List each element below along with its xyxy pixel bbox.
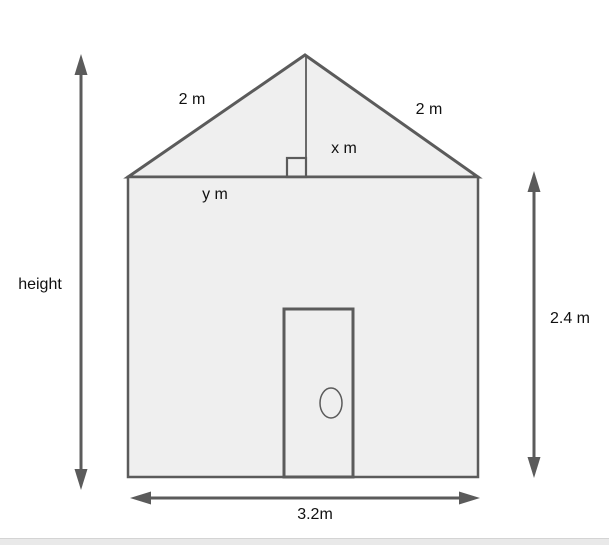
label-roof-left: 2 m: [179, 91, 206, 108]
door: [284, 309, 353, 477]
label-roof-base: y m: [202, 186, 228, 203]
label-base-width: 3.2m: [297, 506, 333, 523]
label-roof-right: 2 m: [416, 101, 443, 118]
label-total-height: height: [18, 276, 62, 293]
label-roof-rise: x m: [331, 140, 357, 157]
label-wall-height: 2.4 m: [550, 310, 590, 327]
height-arrow-icon: [75, 54, 88, 490]
house-diagram: 2 m 2 m x m y m height 2.4 m 3.2m: [0, 0, 609, 545]
diagram-canvas: 2 m 2 m x m y m height 2.4 m 3.2m: [0, 0, 609, 545]
base-width-arrow-icon: [130, 492, 480, 505]
page-bottom-bar: [0, 538, 609, 545]
wall-height-arrow-icon: [528, 171, 541, 478]
